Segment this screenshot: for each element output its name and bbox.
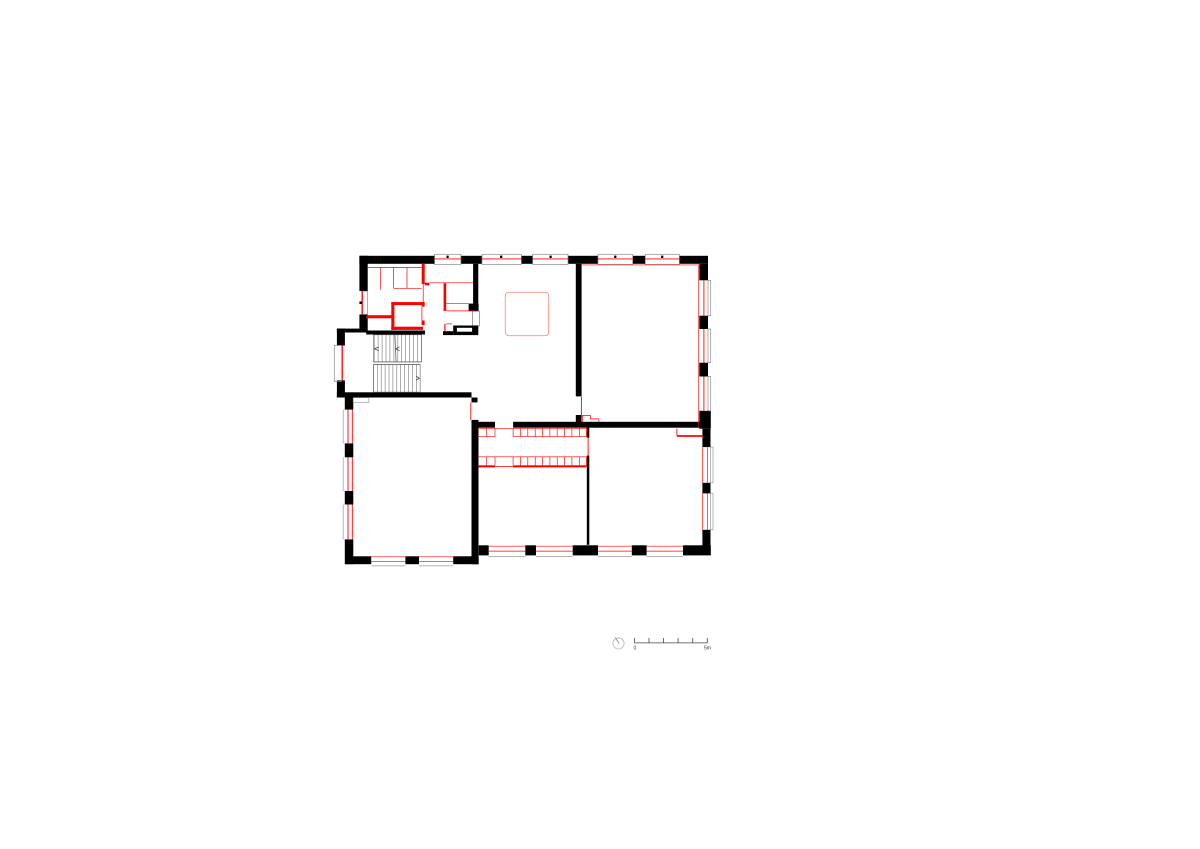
svg-text:5m: 5m <box>704 646 711 652</box>
svg-text:0: 0 <box>634 646 637 652</box>
